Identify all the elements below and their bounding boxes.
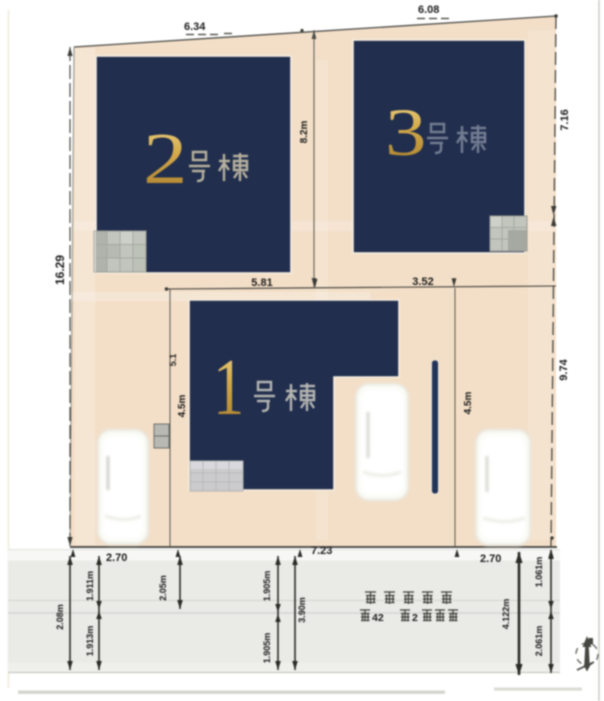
svg-text:2: 2 — [412, 612, 418, 624]
svg-text:8.2m: 8.2m — [299, 120, 310, 143]
svg-text:6.34: 6.34 — [184, 21, 206, 33]
svg-text:42: 42 — [372, 612, 384, 624]
svg-text:3.90m: 3.90m — [297, 597, 307, 623]
svg-text:1: 1 — [213, 343, 244, 432]
svg-text:5.1: 5.1 — [168, 354, 178, 367]
svg-text:1.905m: 1.905m — [262, 571, 272, 602]
svg-text:3: 3 — [385, 95, 426, 170]
svg-text:1.911m: 1.911m — [85, 571, 95, 601]
svg-text:1.913m: 1.913m — [85, 626, 95, 657]
svg-text:16.29: 16.29 — [53, 255, 67, 285]
svg-text:7.16: 7.16 — [559, 109, 571, 130]
svg-text:1.061m: 1.061m — [534, 557, 544, 588]
svg-text:2.05m: 2.05m — [158, 575, 168, 601]
svg-text:2.70: 2.70 — [106, 552, 127, 564]
svg-text:4.5m: 4.5m — [177, 394, 188, 417]
svg-text:4.122m: 4.122m — [501, 599, 511, 630]
svg-text:6.08: 6.08 — [418, 4, 439, 16]
svg-text:3.52: 3.52 — [412, 276, 433, 288]
svg-text:4.5m: 4.5m — [463, 391, 474, 414]
svg-text:9.74: 9.74 — [558, 358, 570, 380]
svg-text:2.08m: 2.08m — [55, 604, 65, 630]
svg-text:2.70: 2.70 — [480, 553, 501, 565]
svg-text:7.23: 7.23 — [311, 545, 332, 557]
svg-text:2: 2 — [143, 118, 188, 200]
svg-text:2.061m: 2.061m — [534, 626, 544, 657]
svg-text:1.905m: 1.905m — [262, 633, 272, 664]
svg-text:5.81: 5.81 — [251, 277, 272, 289]
